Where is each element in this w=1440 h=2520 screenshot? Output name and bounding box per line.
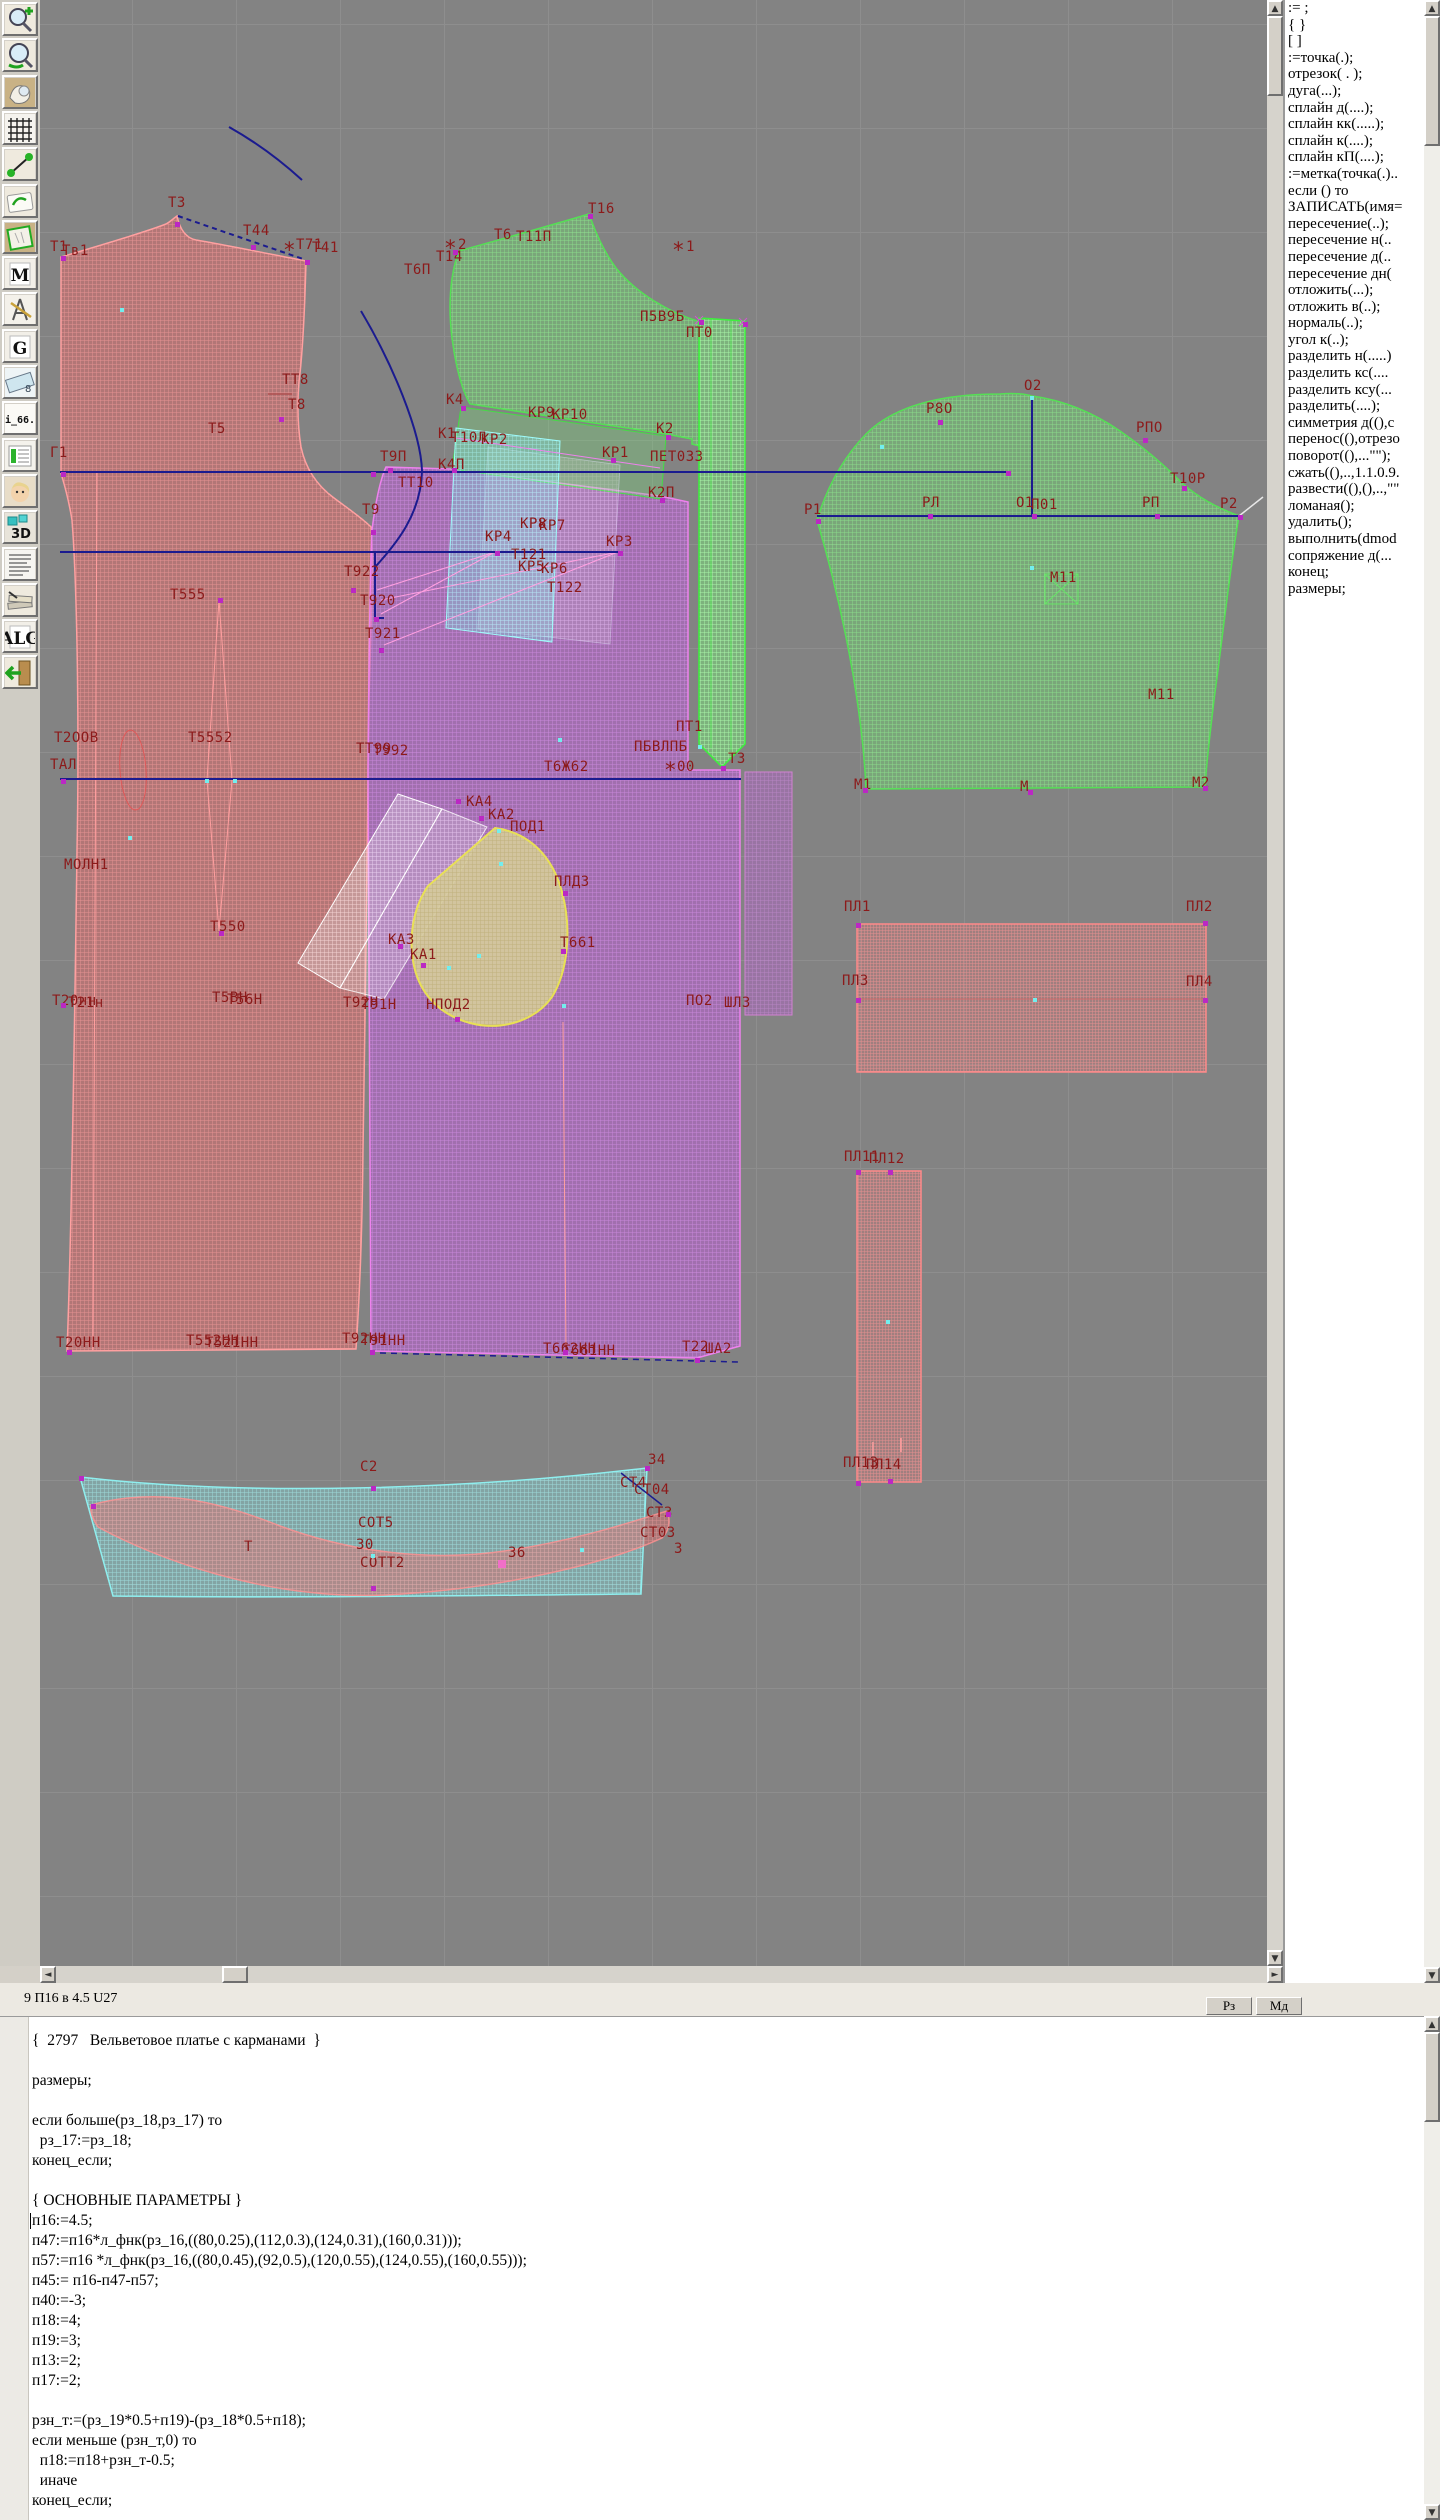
construction-point bbox=[580, 1548, 584, 1552]
construction-point bbox=[251, 245, 256, 250]
construction-point bbox=[479, 816, 484, 821]
command-item[interactable]: := ; bbox=[1285, 0, 1424, 17]
point-label: О2 bbox=[1024, 379, 1042, 393]
construction-point bbox=[371, 472, 376, 477]
construction-point bbox=[743, 322, 748, 327]
point-label: ПЛ14 bbox=[866, 1458, 902, 1472]
construction-point bbox=[1203, 786, 1208, 791]
code-line bbox=[32, 2171, 527, 2191]
point-label: Т555 bbox=[170, 588, 206, 602]
code-line: размеры; bbox=[32, 2071, 527, 2091]
panel-scrollbar[interactable]: ▲ ▼ bbox=[1424, 0, 1440, 1983]
construction-point bbox=[863, 788, 868, 793]
point-label: Т41 bbox=[312, 241, 339, 255]
point-label: Т44 bbox=[243, 224, 270, 238]
command-item[interactable]: сплайн д(....); bbox=[1285, 100, 1424, 117]
command-item[interactable]: :=точка(.); bbox=[1285, 50, 1424, 67]
point-label: Т921 bbox=[365, 627, 401, 641]
scroll-right-icon[interactable]: ► bbox=[1267, 1966, 1283, 1983]
measure-tool-icon[interactable]: M bbox=[2, 256, 38, 290]
point-label: С2 bbox=[360, 1460, 378, 1474]
command-item[interactable]: :=метка(точка(.).. bbox=[1285, 166, 1424, 183]
code-line bbox=[32, 2051, 527, 2071]
point-label: Т5552 bbox=[188, 731, 233, 745]
point-label: ПЛ2 bbox=[1186, 900, 1213, 914]
text-list-icon[interactable] bbox=[2, 547, 38, 581]
point-label: ША2 bbox=[705, 1342, 732, 1356]
scroll-down-icon[interactable]: ▼ bbox=[1267, 1950, 1283, 1966]
point-label: 1 bbox=[686, 240, 695, 254]
construction-point bbox=[91, 1504, 96, 1509]
editor-scroll-down-icon[interactable]: ▼ bbox=[1424, 2504, 1440, 2520]
point-label: 00 bbox=[677, 760, 695, 774]
code-line: { ОСНОВНЫЕ ПАРАМЕТРЫ } bbox=[32, 2191, 527, 2211]
point-label: 34 bbox=[648, 1453, 666, 1467]
md-button[interactable]: Мд bbox=[1256, 1997, 1302, 2015]
construction-point bbox=[128, 836, 132, 840]
point-label: Т11П bbox=[516, 230, 552, 244]
construction-point bbox=[1030, 566, 1034, 570]
command-item[interactable]: сплайн кк(.....); bbox=[1285, 116, 1424, 133]
code-line: рзн_т:=(рз_19*0.5+п19)-(рз_18*0.5+п18); bbox=[32, 2411, 527, 2431]
construction-point bbox=[61, 256, 66, 261]
editor-text[interactable]: { 2797 Вельветовое платье с карманами } … bbox=[32, 2031, 527, 2511]
construction-point bbox=[645, 1466, 650, 1471]
construction-point bbox=[279, 417, 284, 422]
construction-point bbox=[61, 1003, 66, 1008]
construction-point bbox=[721, 766, 726, 771]
point-label: М11 bbox=[1050, 571, 1077, 585]
code-editor[interactable]: { 2797 Вельветовое платье с карманами } … bbox=[0, 2016, 1424, 2520]
construction-point bbox=[928, 514, 933, 519]
construction-point bbox=[61, 779, 66, 784]
point-label: Т8 bbox=[288, 398, 306, 412]
construction-point bbox=[695, 1358, 700, 1363]
construction-point bbox=[856, 998, 861, 1003]
command-item[interactable]: отложить(...); bbox=[1285, 282, 1424, 299]
point-label: КР7 bbox=[539, 519, 566, 533]
construction-point bbox=[938, 420, 943, 425]
construction-point bbox=[371, 530, 376, 535]
point-label: Тв1 bbox=[62, 244, 89, 258]
hscroll-thumb[interactable] bbox=[222, 1966, 248, 1983]
point-label: Г1 bbox=[50, 446, 68, 460]
code-line: п19:=3; bbox=[32, 2331, 527, 2351]
vscroll-thumb[interactable] bbox=[1267, 16, 1283, 96]
construction-point bbox=[588, 214, 593, 219]
point-label: НПОД2 bbox=[426, 998, 471, 1012]
construction-point bbox=[558, 738, 562, 742]
editor-scrollbar[interactable]: ▲ ▼ bbox=[1424, 2016, 1440, 2520]
construction-point bbox=[351, 588, 356, 593]
command-item[interactable]: пересечение д(.. bbox=[1285, 249, 1424, 266]
point-label: 36 bbox=[508, 1546, 526, 1560]
construction-point bbox=[79, 1476, 84, 1481]
command-item[interactable]: отрезок( . ); bbox=[1285, 66, 1424, 83]
construction-point bbox=[699, 320, 704, 325]
point-label: 30 bbox=[356, 1538, 374, 1552]
construction-point bbox=[1238, 515, 1243, 520]
svg-text:8: 8 bbox=[25, 384, 31, 395]
zoom-in-icon[interactable] bbox=[2, 2, 38, 36]
construction-point bbox=[1032, 514, 1037, 519]
code-line: если больше(рз_18,рз_17) то bbox=[32, 2111, 527, 2131]
command-item[interactable]: разделить н(.....) bbox=[1285, 348, 1424, 365]
exit-icon[interactable] bbox=[2, 655, 38, 689]
canvas-hscrollbar[interactable]: ◄ ► bbox=[40, 1966, 1283, 1983]
construction-point bbox=[498, 1560, 506, 1568]
left-toolbar: MG8i_66.3DALG bbox=[0, 0, 40, 1966]
point-label: ПЛД3 bbox=[554, 875, 590, 889]
code-line: п18:=п18+рзн_т-0.5; bbox=[32, 2451, 527, 2471]
point-star-marker: * bbox=[664, 764, 677, 776]
construction-point bbox=[371, 1486, 376, 1491]
construction-point bbox=[561, 949, 566, 954]
construction-point bbox=[1030, 396, 1034, 400]
construction-point bbox=[305, 260, 310, 265]
scroll-left-icon[interactable]: ◄ bbox=[40, 1966, 56, 1983]
construction-point bbox=[379, 648, 384, 653]
construction-point bbox=[371, 1586, 376, 1591]
command-item[interactable]: дуга(...); bbox=[1285, 83, 1424, 100]
construction-point bbox=[1143, 438, 1148, 443]
svg-text:G: G bbox=[13, 339, 28, 359]
point-label: КР10 bbox=[552, 408, 588, 422]
construction-point bbox=[398, 944, 403, 949]
construction-point bbox=[497, 829, 501, 833]
code-line: иначе bbox=[32, 2471, 527, 2491]
segment-icon[interactable] bbox=[2, 147, 38, 181]
editor-scroll-up-icon[interactable]: ▲ bbox=[1424, 2016, 1440, 2032]
command-item[interactable]: выполнить(dmod bbox=[1285, 531, 1424, 548]
point-label: КР4 bbox=[485, 530, 512, 544]
command-item[interactable]: разделить(....); bbox=[1285, 398, 1424, 415]
construction-point bbox=[205, 779, 209, 783]
construction-point bbox=[452, 468, 457, 473]
command-item[interactable]: [ ] bbox=[1285, 33, 1424, 50]
point-label: ПЕТ033 bbox=[650, 450, 704, 464]
code-line: п16:=4.5; bbox=[32, 2211, 527, 2231]
point-label: Т661 bbox=[560, 936, 596, 950]
command-item[interactable]: разделить кс(.... bbox=[1285, 365, 1424, 382]
construction-point bbox=[611, 458, 616, 463]
point-label: Т14 bbox=[436, 250, 463, 264]
construction-point bbox=[666, 1512, 671, 1517]
point-label: Т91НН bbox=[361, 1334, 406, 1348]
command-item[interactable]: разделить ксу(... bbox=[1285, 382, 1424, 399]
point-label: П01 bbox=[1031, 498, 1058, 512]
point-label: Р1 bbox=[804, 503, 822, 517]
svg-text:3D: 3D bbox=[11, 527, 31, 542]
point-label: Т920 bbox=[360, 594, 396, 608]
point-label: Т3 bbox=[168, 196, 186, 210]
point-label: РП bbox=[1142, 496, 1160, 510]
point-label: ПО2 bbox=[686, 994, 713, 1008]
construction-point bbox=[374, 617, 379, 622]
point-label: РЛ bbox=[922, 496, 940, 510]
construction-point bbox=[456, 799, 461, 804]
point-label: Т6П bbox=[404, 263, 431, 277]
point-label: 3 bbox=[674, 1542, 683, 1556]
editor-scroll-thumb[interactable] bbox=[1424, 2032, 1440, 2122]
construction-point bbox=[218, 598, 223, 603]
point-label: РПО bbox=[1136, 421, 1163, 435]
construction-point bbox=[888, 1479, 893, 1484]
point-label: Т3 bbox=[728, 752, 746, 766]
pattern-canvas[interactable]: Т1Тв1Т3Т44*Т71Т41*2Т14Т6ПТ6Т11ПТ16*1П5В9… bbox=[40, 0, 1267, 1966]
construction-point bbox=[455, 1017, 460, 1022]
compass-icon[interactable] bbox=[2, 292, 38, 326]
construction-point bbox=[1033, 998, 1037, 1002]
point-label: ПТ1 bbox=[676, 720, 703, 734]
point-label: ШЛ3 bbox=[724, 996, 751, 1010]
construction-point bbox=[563, 891, 568, 896]
construction-point bbox=[856, 923, 861, 928]
command-item[interactable]: если () то bbox=[1285, 183, 1424, 200]
status-text: 9 П16 в 4.5 U27 bbox=[24, 1991, 117, 2007]
command-item[interactable]: сплайн кП(....); bbox=[1285, 149, 1424, 166]
point-label: КР6 bbox=[541, 562, 568, 576]
command-item[interactable]: сплайн к(....); bbox=[1285, 133, 1424, 150]
point-label: Т2ООВ bbox=[54, 731, 99, 745]
command-item[interactable]: развести((),(),..,"" bbox=[1285, 481, 1424, 498]
command-item[interactable]: отложить в(..); bbox=[1285, 299, 1424, 316]
construction-point bbox=[1203, 921, 1208, 926]
piece-view-icon[interactable] bbox=[2, 75, 38, 109]
command-item[interactable]: конец; bbox=[1285, 564, 1424, 581]
point-label: Т21н bbox=[68, 996, 104, 1010]
point-label: Т521НН bbox=[205, 1336, 259, 1350]
zoom-out-icon[interactable] bbox=[2, 38, 38, 72]
command-item[interactable]: перенос((),отрезо bbox=[1285, 431, 1424, 448]
code-line bbox=[32, 2391, 527, 2411]
construction-point bbox=[1028, 790, 1033, 795]
point-label: П5В9Б bbox=[640, 310, 685, 324]
code-line: конец_если; bbox=[32, 2491, 527, 2511]
grid-icon[interactable] bbox=[2, 111, 38, 145]
point-label: ПБВЛПБ bbox=[634, 740, 688, 754]
point-label: К2 bbox=[656, 422, 674, 436]
construction-point bbox=[371, 1554, 375, 1558]
point-label: Р2 bbox=[1220, 497, 1238, 511]
construction-point bbox=[370, 1350, 375, 1355]
command-item[interactable]: симметрия д((),с bbox=[1285, 415, 1424, 432]
command-item[interactable]: угол к(..); bbox=[1285, 332, 1424, 349]
code-line: п47:=п16*л_фнк(рз_16,((80,0.25),(112,0.3… bbox=[32, 2231, 527, 2251]
point-label: М11 bbox=[1148, 688, 1175, 702]
construction-point bbox=[461, 406, 466, 411]
point-label: Т922 bbox=[344, 565, 380, 579]
construction-point bbox=[499, 862, 503, 866]
construction-point bbox=[816, 519, 821, 524]
ruler-icon[interactable]: 8 bbox=[2, 365, 38, 399]
command-item[interactable]: пересечение дн( bbox=[1285, 266, 1424, 283]
point-label: СТ04 bbox=[634, 1483, 670, 1497]
point-label: Р8О bbox=[926, 402, 953, 416]
point-label: КР2 bbox=[481, 433, 508, 447]
point-label: Т5 bbox=[208, 422, 226, 436]
point-label: Т9 bbox=[362, 503, 380, 517]
table-icon[interactable] bbox=[2, 438, 38, 472]
code-line: если меньше (рзн_т,0) то bbox=[32, 2431, 527, 2451]
canvas-vscrollbar[interactable]: ▲ ▼ bbox=[1267, 0, 1283, 1966]
point-label: ПТ0 bbox=[686, 326, 713, 340]
command-item[interactable]: ЗАПИСАТЬ(имя= bbox=[1285, 199, 1424, 216]
rz-button[interactable]: Рз bbox=[1206, 1997, 1252, 2015]
point-label: Т550 bbox=[210, 920, 246, 934]
command-item[interactable]: удалить(); bbox=[1285, 514, 1424, 531]
construction-point bbox=[666, 435, 671, 440]
point-label: ТТ8 bbox=[282, 373, 309, 387]
books-icon[interactable] bbox=[2, 583, 38, 617]
construction-point bbox=[175, 222, 180, 227]
point-label: Т bbox=[244, 1540, 253, 1554]
construction-point bbox=[698, 745, 702, 749]
pattern-cad-window: MG8i_66.3DALG bbox=[0, 0, 1440, 2520]
model-photo-icon[interactable] bbox=[2, 474, 38, 508]
point-label: МОЛН1 bbox=[64, 858, 109, 872]
command-item[interactable]: ломаная(); bbox=[1285, 498, 1424, 515]
command-item[interactable]: пересечение(..); bbox=[1285, 216, 1424, 233]
command-item[interactable]: поворот((),...""); bbox=[1285, 448, 1424, 465]
point-label: Т122 bbox=[547, 581, 583, 595]
command-panel: := ;{ }[ ]:=точка(.);отрезок( . );дуга(.… bbox=[1283, 0, 1424, 1983]
construction-point bbox=[856, 1481, 861, 1486]
point-label: СТ03 bbox=[640, 1526, 676, 1540]
scroll-up-icon[interactable]: ▲ bbox=[1267, 0, 1283, 16]
svg-text:ALG: ALG bbox=[5, 629, 35, 649]
svg-text:M: M bbox=[11, 266, 30, 286]
construction-point bbox=[120, 308, 124, 312]
code-line: п13:=2; bbox=[32, 2351, 527, 2371]
construction-point bbox=[233, 779, 237, 783]
code-line: { 2797 Вельветовое платье с карманами } bbox=[32, 2031, 527, 2051]
point-label: СОТТ2 bbox=[360, 1556, 405, 1570]
point-label: Т9П bbox=[380, 450, 407, 464]
point-label: КР9 bbox=[528, 406, 555, 420]
construction-point bbox=[447, 966, 451, 970]
status-bar: 9 П16 в 4.5 U27 Рз Мд bbox=[0, 1983, 1440, 2016]
panel-scroll-down-icon[interactable]: ▼ bbox=[1424, 1967, 1440, 1983]
point-label: Т661НН bbox=[562, 1344, 616, 1358]
command-item[interactable]: сопряжение д(... bbox=[1285, 548, 1424, 565]
point-label: ПЛ4 bbox=[1186, 975, 1213, 989]
construction-point bbox=[563, 1350, 568, 1355]
point-label: ТТ10 bbox=[398, 476, 434, 490]
point-label: КР3 bbox=[606, 535, 633, 549]
point-label: Т56Н bbox=[227, 993, 263, 1007]
code-line: п57:=п16 *л_фнк(рз_16,((80,0.45),(92,0.5… bbox=[32, 2251, 527, 2271]
point-label: ПЛ12 bbox=[869, 1152, 905, 1166]
point-label: ПЛ3 bbox=[842, 974, 869, 988]
point-label: СОТ5 bbox=[358, 1516, 394, 1530]
code-line: п18:=4; bbox=[32, 2311, 527, 2331]
construction-point bbox=[1155, 514, 1160, 519]
command-item[interactable]: пересечение н(.. bbox=[1285, 232, 1424, 249]
svg-text:i_66.: i_66. bbox=[5, 414, 35, 426]
construction-point bbox=[888, 1170, 893, 1175]
construction-point bbox=[421, 963, 426, 968]
point-label: Т91Н bbox=[361, 998, 397, 1012]
code-line bbox=[32, 2091, 527, 2111]
command-item[interactable]: размеры; bbox=[1285, 581, 1424, 598]
panel-scroll-up-icon[interactable]: ▲ bbox=[1424, 0, 1440, 16]
code-line: п17:=2; bbox=[32, 2371, 527, 2391]
sketch-icon[interactable] bbox=[2, 184, 38, 218]
construction-point bbox=[67, 1350, 72, 1355]
construction-point bbox=[477, 954, 481, 958]
construction-point bbox=[495, 551, 500, 556]
point-label: ПОД1 bbox=[510, 820, 546, 834]
point-label: Т6 bbox=[494, 228, 512, 242]
construction-point bbox=[219, 931, 224, 936]
code-line: рз_17:=рз_18; bbox=[32, 2131, 527, 2151]
point-star-marker: * bbox=[672, 244, 685, 256]
construction-point bbox=[660, 498, 665, 503]
point-label: Т10Р bbox=[1170, 472, 1206, 486]
point-label: Т992 bbox=[373, 744, 409, 758]
alg-icon[interactable]: ALG bbox=[2, 619, 38, 653]
construction-point bbox=[886, 1320, 890, 1324]
construction-point bbox=[856, 1170, 861, 1175]
construction-point bbox=[1182, 486, 1187, 491]
editor-gutter bbox=[0, 2017, 29, 2520]
i66-size-icon[interactable]: i_66. bbox=[2, 401, 38, 435]
construction-point bbox=[453, 250, 458, 255]
3d-icon[interactable]: 3D bbox=[2, 510, 38, 544]
construction-point bbox=[562, 1004, 566, 1008]
command-item[interactable]: { } bbox=[1285, 17, 1424, 34]
panel-scroll-thumb[interactable] bbox=[1424, 16, 1440, 146]
code-line: конец_если; bbox=[32, 2151, 527, 2171]
construction-point bbox=[388, 468, 393, 473]
point-label: ТАЛ bbox=[50, 758, 77, 772]
point-labels-layer: Т1Тв1Т3Т44*Т71Т41*2Т14Т6ПТ6Т11ПТ16*1П5В9… bbox=[40, 0, 1267, 1966]
construction-point bbox=[1006, 471, 1011, 476]
point-label: ПЛ1 bbox=[844, 900, 871, 914]
point-label: Т20НН bbox=[56, 1336, 101, 1350]
point-label: КА1 bbox=[410, 948, 437, 962]
construction-point bbox=[1203, 998, 1208, 1003]
construction-point bbox=[880, 445, 884, 449]
point-star-marker: * bbox=[283, 244, 296, 256]
g-tool-icon[interactable]: G bbox=[2, 329, 38, 363]
point-label: К4 bbox=[446, 393, 464, 407]
construction-point bbox=[61, 472, 66, 477]
code-line: п45:= п16-п47-п57; bbox=[32, 2271, 527, 2291]
construction-point bbox=[618, 551, 623, 556]
point-label: Т6Ж62 bbox=[544, 760, 589, 774]
code-line: п40:=-3; bbox=[32, 2291, 527, 2311]
command-item[interactable]: сжать((),..,1.1.0.9. bbox=[1285, 465, 1424, 482]
command-item[interactable]: нормаль(..); bbox=[1285, 315, 1424, 332]
pattern-icon[interactable] bbox=[2, 220, 38, 254]
text-caret bbox=[30, 2213, 31, 2229]
